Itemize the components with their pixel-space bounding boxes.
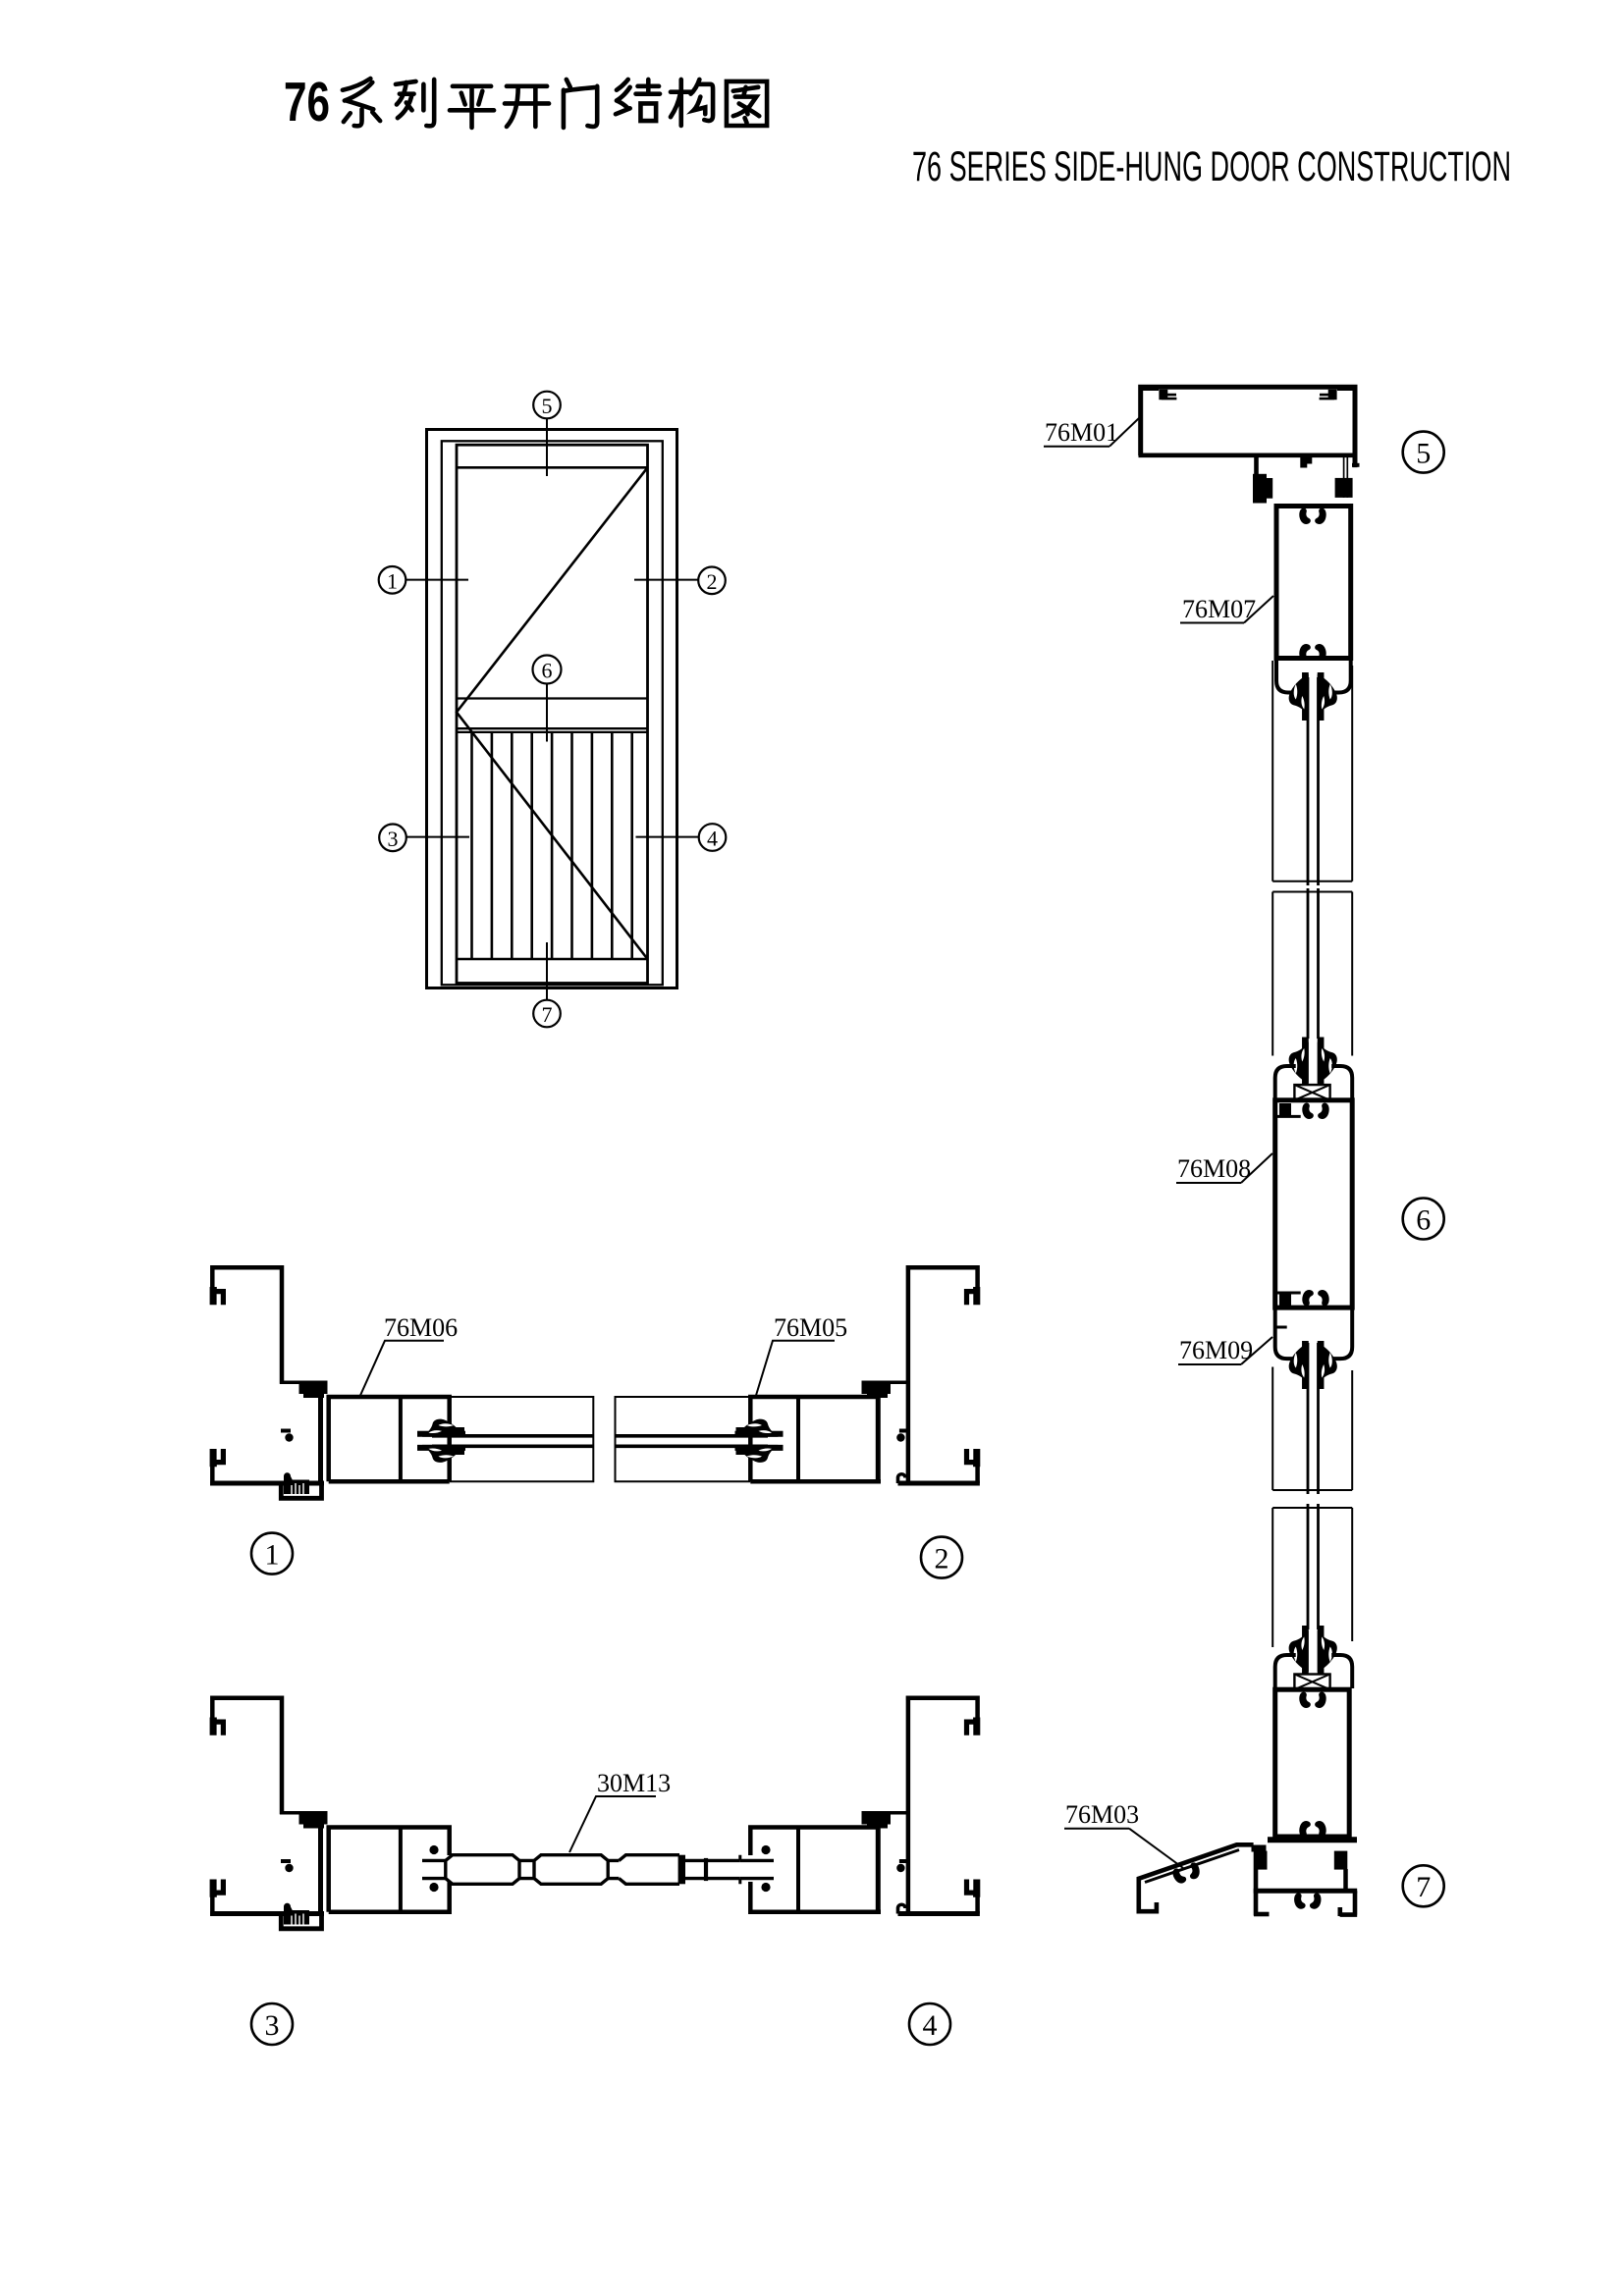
svg-text:7: 7 xyxy=(542,1002,553,1027)
svg-text:76M06: 76M06 xyxy=(384,1313,458,1342)
svg-text:6: 6 xyxy=(1416,1204,1431,1237)
svg-text:3: 3 xyxy=(265,2009,280,2042)
svg-text:1: 1 xyxy=(265,1539,280,1572)
svg-text:76: 76 xyxy=(284,71,330,133)
svg-text:2: 2 xyxy=(707,569,718,594)
svg-text:76 SERIES SIDE-HUNG DOOR CONST: 76 SERIES SIDE-HUNG DOOR CONSTRUCTION xyxy=(912,143,1511,190)
svg-text:5: 5 xyxy=(542,394,553,418)
svg-text:76M01: 76M01 xyxy=(1045,418,1118,447)
svg-text:4: 4 xyxy=(707,827,718,851)
svg-text:76M09: 76M09 xyxy=(1179,1336,1253,1364)
svg-text:5: 5 xyxy=(1416,438,1431,470)
svg-text:3: 3 xyxy=(388,827,399,851)
svg-text:76M07: 76M07 xyxy=(1182,595,1256,623)
svg-text:76M03: 76M03 xyxy=(1065,1800,1139,1829)
svg-text:30M13: 30M13 xyxy=(597,1769,671,1797)
svg-text:4: 4 xyxy=(923,2009,938,2042)
svg-text:6: 6 xyxy=(542,659,553,683)
svg-text:7: 7 xyxy=(1416,1871,1431,1903)
svg-text:2: 2 xyxy=(935,1543,949,1575)
svg-text:76M08: 76M08 xyxy=(1177,1154,1251,1183)
svg-text:1: 1 xyxy=(387,568,398,593)
svg-text:76M05: 76M05 xyxy=(774,1313,847,1342)
